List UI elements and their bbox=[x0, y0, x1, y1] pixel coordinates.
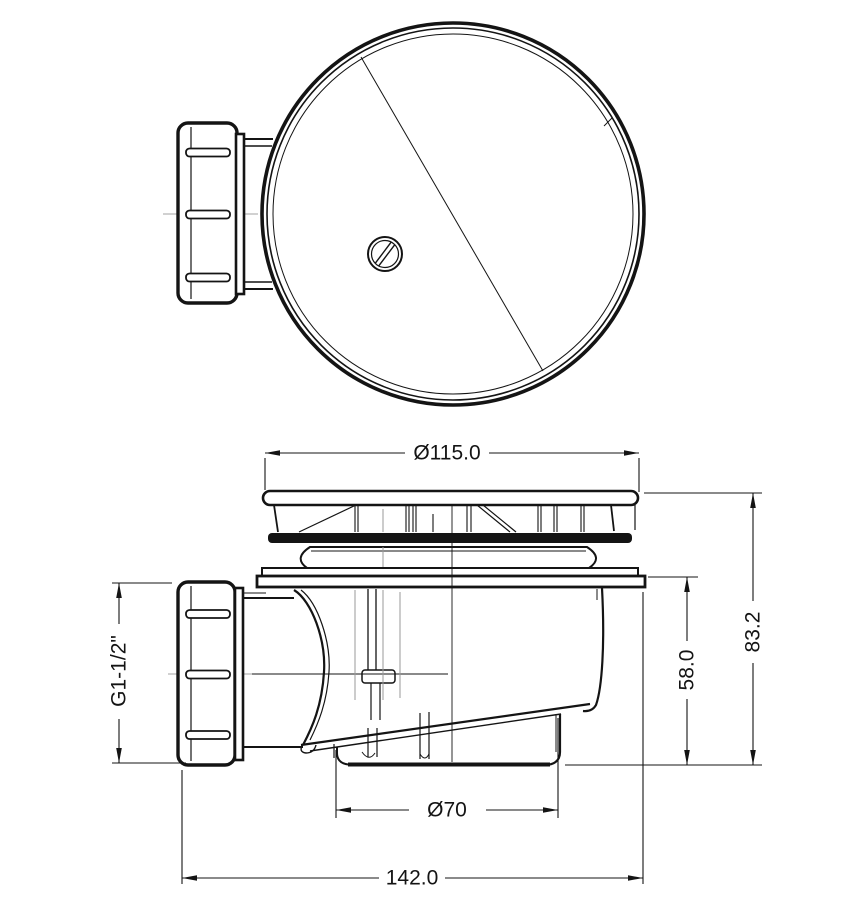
dimension-inner-height: 58.0 bbox=[648, 577, 699, 765]
dim-label-total-width: 142.0 bbox=[386, 867, 439, 890]
technical-drawing-shower-drain: Ø115.0 83.2 58.0 G1-1/2" Ø70 bbox=[0, 0, 853, 915]
cover-reflection-line bbox=[361, 57, 543, 371]
dim-label-thread-size: G1-1/2" bbox=[108, 635, 131, 707]
dimension-thread-size: G1-1/2" bbox=[108, 583, 187, 763]
top-view bbox=[163, 23, 644, 405]
dim-label-cup-diameter: Ø70 bbox=[427, 799, 467, 822]
cover-screw bbox=[368, 237, 402, 271]
cap-under-ribs bbox=[299, 505, 584, 532]
drain-cover-rings bbox=[262, 23, 644, 405]
dim-label-inner-height: 58.0 bbox=[676, 650, 699, 691]
trap-body bbox=[243, 588, 603, 753]
flange bbox=[257, 568, 645, 587]
outlet-nut-side-view bbox=[178, 582, 243, 765]
dimension-cup-diameter: Ø70 bbox=[336, 718, 558, 822]
dimension-cover-diameter: Ø115.0 bbox=[265, 442, 639, 493]
rubber-seal bbox=[268, 533, 632, 543]
cap-assembly bbox=[263, 491, 638, 532]
upper-bell bbox=[301, 547, 596, 568]
outlet-nut-top-view bbox=[178, 123, 273, 303]
sloped-bottom bbox=[301, 704, 590, 745]
dimension-total-width: 142.0 bbox=[182, 592, 643, 890]
side-view bbox=[168, 491, 645, 765]
dim-label-total-height: 83.2 bbox=[742, 612, 765, 653]
dim-label-cover-diameter: Ø115.0 bbox=[413, 442, 480, 465]
ring-seam-tick bbox=[604, 118, 612, 126]
